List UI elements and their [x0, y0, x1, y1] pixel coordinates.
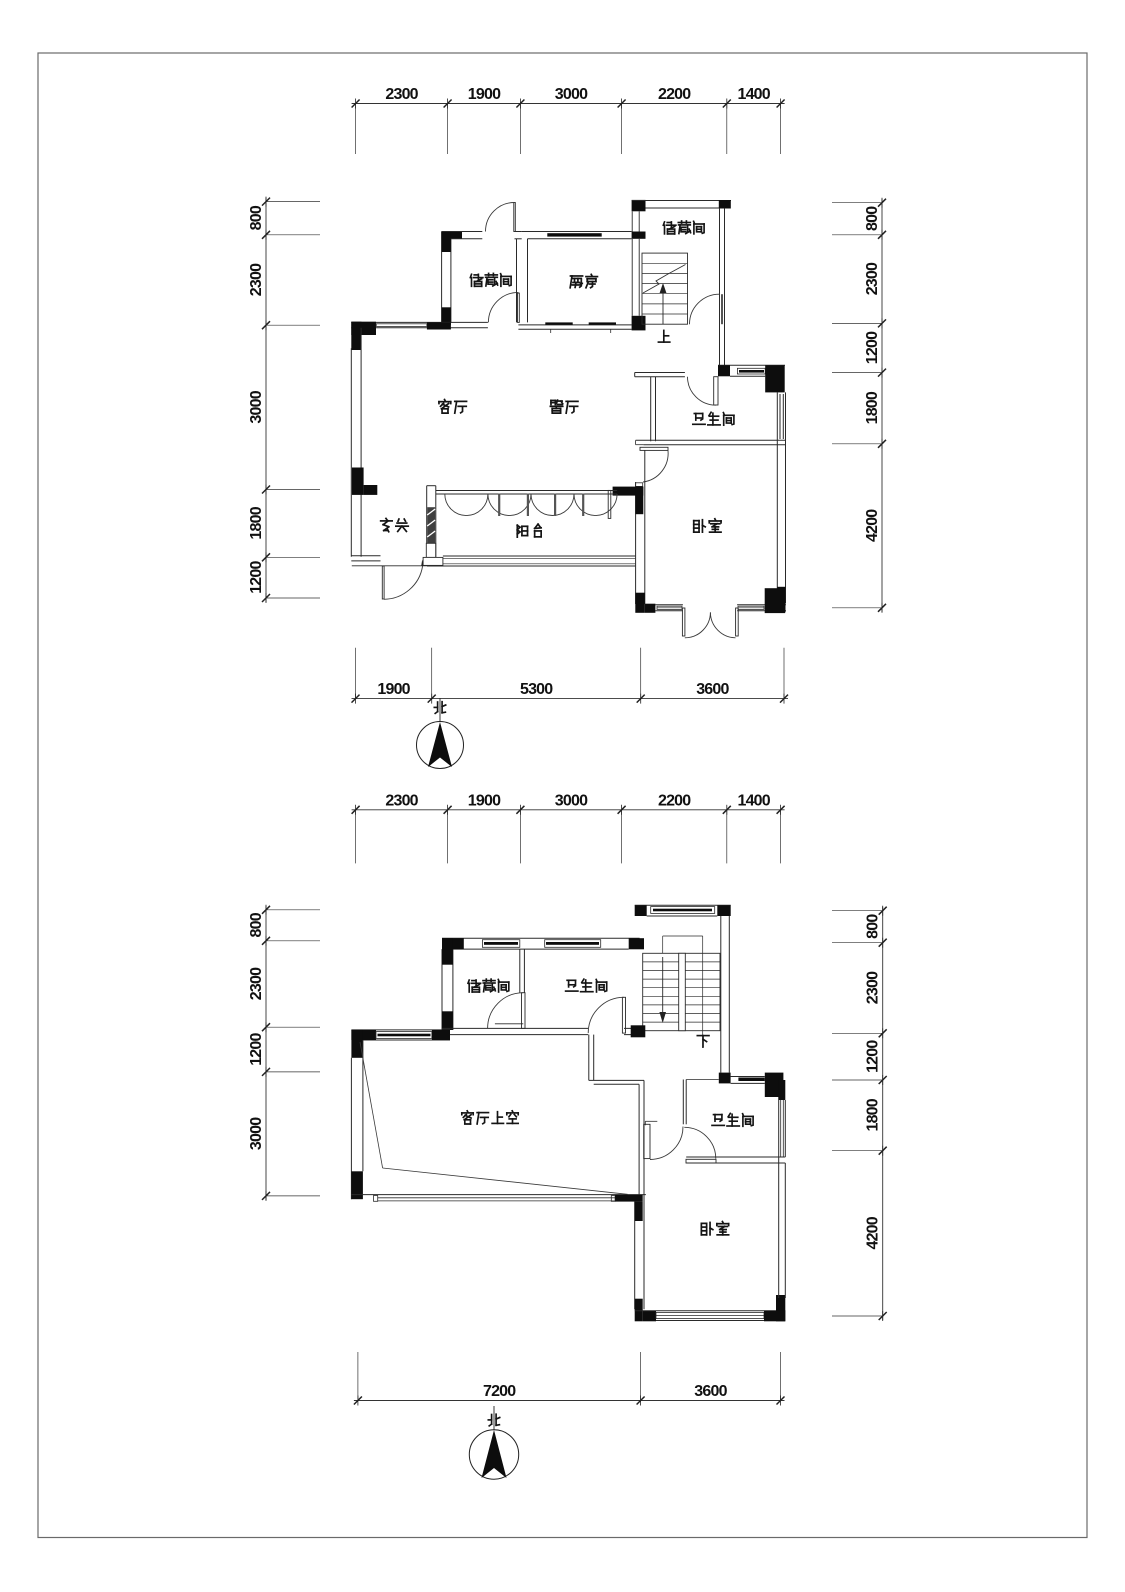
svg-text:1400: 1400	[737, 792, 770, 809]
svg-text:3600: 3600	[696, 681, 729, 698]
svg-text:800: 800	[248, 205, 265, 230]
svg-text:800: 800	[865, 914, 882, 939]
svg-text:1200: 1200	[865, 1040, 882, 1073]
svg-text:3000: 3000	[248, 390, 265, 423]
svg-text:2200: 2200	[658, 86, 691, 103]
svg-text:1800: 1800	[865, 1098, 882, 1131]
svg-text:1200: 1200	[864, 331, 881, 364]
svg-text:4200: 4200	[865, 1216, 882, 1249]
svg-text:2300: 2300	[385, 86, 418, 103]
svg-text:1200: 1200	[248, 561, 265, 594]
svg-text:1200: 1200	[248, 1033, 265, 1066]
svg-text:5300: 5300	[520, 681, 553, 698]
svg-text:2300: 2300	[248, 967, 265, 1000]
svg-text:3600: 3600	[694, 1383, 727, 1400]
svg-text:1400: 1400	[737, 86, 770, 103]
svg-text:2300: 2300	[864, 262, 881, 295]
svg-text:1800: 1800	[248, 506, 265, 539]
svg-text:1800: 1800	[864, 391, 881, 424]
svg-text:4200: 4200	[864, 509, 881, 542]
svg-text:800: 800	[864, 206, 881, 231]
svg-text:1900: 1900	[468, 86, 501, 103]
svg-text:7200: 7200	[483, 1383, 516, 1400]
svg-text:1900: 1900	[468, 792, 501, 809]
svg-text:2300: 2300	[385, 792, 418, 809]
svg-text:2300: 2300	[248, 263, 265, 296]
svg-text:2200: 2200	[658, 792, 691, 809]
svg-text:3000: 3000	[248, 1117, 265, 1150]
svg-text:2300: 2300	[865, 971, 882, 1004]
svg-text:3000: 3000	[555, 792, 588, 809]
svg-text:1900: 1900	[377, 681, 410, 698]
svg-text:800: 800	[248, 912, 265, 937]
svg-text:3000: 3000	[555, 86, 588, 103]
